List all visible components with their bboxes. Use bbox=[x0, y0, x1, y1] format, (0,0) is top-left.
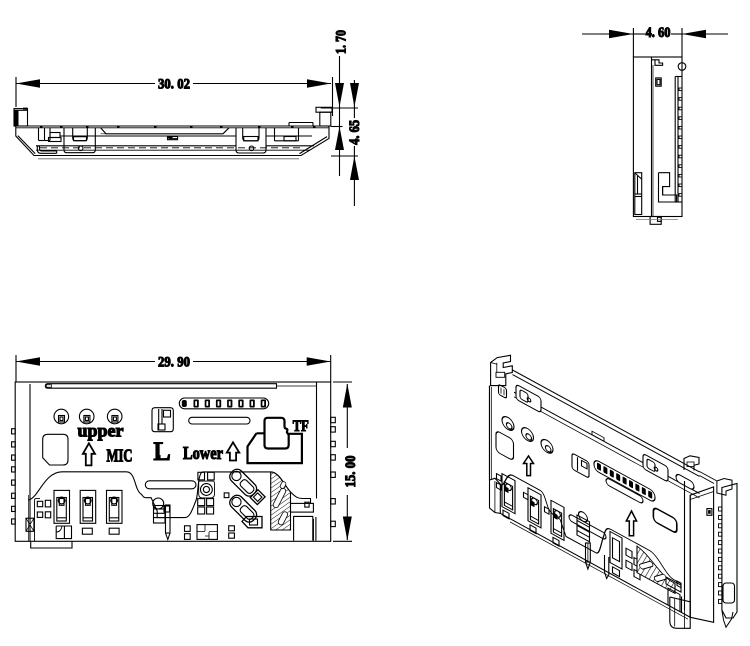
svg-text:1. 70: 1. 70 bbox=[334, 30, 350, 54]
svg-text:MIC: MIC bbox=[107, 446, 133, 466]
svg-text:Lower: Lower bbox=[183, 443, 223, 463]
svg-text:29. 90: 29. 90 bbox=[158, 354, 190, 370]
svg-text:TF: TF bbox=[293, 418, 309, 435]
svg-text:4. 60: 4. 60 bbox=[646, 25, 671, 41]
svg-text:15. 00: 15. 00 bbox=[343, 456, 359, 488]
svg-text:L: L bbox=[153, 437, 170, 466]
svg-text:4. 65: 4. 65 bbox=[347, 120, 363, 145]
svg-text:upper: upper bbox=[78, 421, 124, 441]
svg-text:30. 02: 30. 02 bbox=[158, 77, 190, 93]
